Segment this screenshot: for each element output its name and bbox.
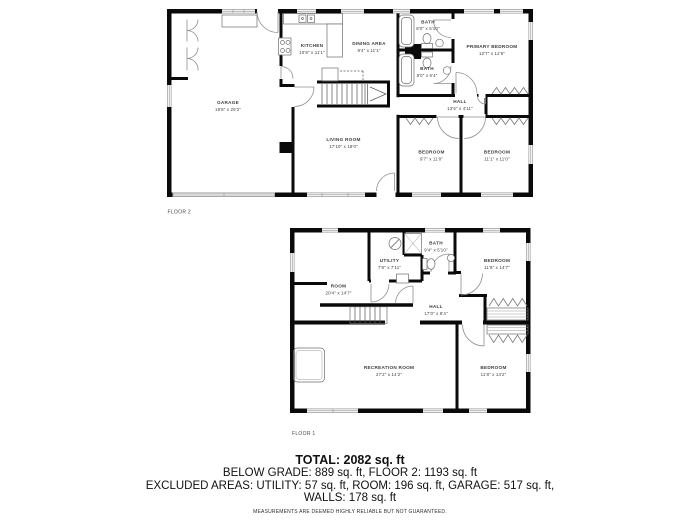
- walls-area: WALLS: 178 sq. ft: [0, 492, 700, 505]
- room-label-dining: DINING AREA 9'4" x 11'1": [352, 41, 386, 53]
- floor1-plan: UTILITY 7'8" x 7'11" BATH 9'4" x 5'10" B…: [290, 228, 531, 437]
- room-name: BATH: [421, 20, 435, 25]
- window: [425, 228, 445, 233]
- window: [167, 85, 172, 107]
- room-name: LIVING ROOM: [326, 137, 360, 142]
- floor2-label: FLOOR 2: [168, 210, 192, 216]
- bath-bedroom-wall: [455, 232, 461, 273]
- window: [469, 409, 487, 414]
- primary-closet-bifold-doors: [492, 88, 528, 95]
- room-dims: 20'4" x 14'7": [325, 291, 351, 296]
- room-name: DINING AREA: [352, 41, 386, 46]
- room-label-utility: UTILITY 7'8" x 7'11": [378, 258, 401, 270]
- toilet-bowl: [423, 34, 431, 44]
- floor1-label: FLOOR 1: [292, 431, 316, 437]
- window: [412, 193, 441, 198]
- room-label-bath: BATH 9'4" x 5'10": [424, 241, 448, 253]
- hall-door-arc: [396, 286, 414, 304]
- room-name: HALL: [453, 99, 467, 104]
- room-dims: 11'8" x 14'7": [484, 265, 510, 270]
- kitchen-counter: [327, 24, 343, 57]
- floorplan-page: GARAGE 19'8" x 29'2" KITCHEN 10'8" x 11'…: [0, 0, 700, 525]
- total-area: TOTAL: 2082 sq. ft: [0, 453, 700, 467]
- room-dims: 7'8" x 7'11": [378, 265, 401, 270]
- room-label-living: LIVING ROOM 17'10" x 18'0": [326, 137, 360, 149]
- room-label-bedroom2: BEDROOM 11'1" x 11'0": [484, 150, 510, 162]
- bedroom2-door-arc: [464, 117, 486, 139]
- room-label-bedroom1: BEDROOM 11'8" x 14'7": [484, 258, 510, 270]
- grade-areas: BELOW GRADE: 889 sq. ft, FLOOR 2: 1193 s…: [0, 467, 700, 480]
- window: [500, 9, 523, 14]
- room-name: RECREATION ROOM: [364, 365, 414, 370]
- primary-bedroom-door-arc: [456, 73, 477, 94]
- room-name: BEDROOM: [418, 150, 444, 155]
- bathroom-sink: [447, 254, 454, 261]
- garage-living-door-arc: [295, 87, 315, 107]
- window: [526, 354, 531, 372]
- room-dims: 12'7" x 12'6": [479, 51, 505, 56]
- chimney-block: [280, 142, 294, 153]
- room-name: ROOM: [331, 284, 347, 289]
- water-heater: [397, 274, 409, 283]
- window: [341, 9, 364, 14]
- stair-landing: [322, 68, 338, 81]
- floorplan-canvas: GARAGE 19'8" x 29'2" KITCHEN 10'8" x 11'…: [0, 0, 700, 525]
- garage-cabinet-doors: [187, 20, 198, 42]
- room-dims: 9'4" x 5'10": [424, 248, 448, 253]
- bedroom1-door-arc: [461, 274, 483, 296]
- stair-overhead-dashed-line: [340, 71, 363, 80]
- floor2-plan: GARAGE 19'8" x 29'2" KITCHEN 10'8" x 11'…: [167, 9, 533, 216]
- room-name: GARAGE: [217, 100, 239, 105]
- bedroom2-closet-bifold-doors: [489, 335, 527, 343]
- room-name: BEDROOM: [480, 365, 506, 370]
- stair-divider: [365, 84, 368, 104]
- garage-door: [173, 193, 276, 198]
- room-name: HALL: [429, 304, 443, 309]
- bedroom1-closet-bifold-doors: [489, 299, 527, 307]
- window: [529, 22, 534, 40]
- room-label-bath1: BATH 8'0" x 5'10": [416, 20, 440, 32]
- room-dims: 27'2" x 14'2": [376, 372, 402, 377]
- room-name: BEDROOM: [484, 150, 510, 155]
- room-dims: 19'8" x 29'2": [215, 107, 241, 112]
- room-dims: 10'8" x 11'1": [299, 50, 325, 55]
- window: [297, 9, 316, 14]
- window: [423, 409, 443, 414]
- room-name: BATH: [420, 66, 434, 71]
- room-label-kitchen: KITCHEN 10'8" x 11'1": [299, 43, 325, 55]
- window: [307, 409, 358, 414]
- room-label-hall1: HALL 17'0" x 8'4": [424, 304, 448, 316]
- toilet-bowl: [427, 259, 435, 270]
- front-door-arc: [377, 173, 395, 191]
- room-dims: 8'0" x 6'4": [417, 73, 438, 78]
- room-name: BEDROOM: [484, 258, 510, 263]
- bathroom-sink: [436, 39, 444, 47]
- sliding-door: [307, 193, 365, 198]
- window: [483, 228, 500, 233]
- utility-door-arc: [371, 284, 389, 302]
- room-label-bedroom1: BEDROOM 9'7" x 11'0": [418, 150, 444, 162]
- window: [464, 9, 494, 14]
- recreation-door-arc: [463, 325, 485, 347]
- window: [322, 228, 338, 233]
- room-label-bath2: BATH 8'0" x 6'4": [417, 66, 438, 78]
- toilet-tank: [422, 44, 433, 49]
- room-dims: 9'4" x 11'1": [357, 48, 380, 53]
- stair-treads: [322, 84, 362, 104]
- room-name: UTILITY: [380, 258, 400, 263]
- room-name: KITCHEN: [301, 43, 324, 48]
- room-label-hall2: HALL 13'5" x 4'11": [447, 99, 473, 111]
- garage-exterior-door-arc: [257, 12, 278, 33]
- floor2-stairs: [322, 68, 386, 104]
- stair-direction-arrow: [370, 87, 386, 101]
- window: [529, 145, 534, 164]
- bedroom1-door-arc: [438, 117, 460, 139]
- room-label-room: ROOM 20'4" x 14'7": [325, 284, 351, 296]
- toilet-tank: [422, 52, 433, 57]
- toilet-tank: [423, 259, 428, 270]
- room-dims: 9'7" x 11'0": [420, 157, 443, 162]
- room-dims: 11'8" x 14'2": [481, 372, 507, 377]
- pool-table: [294, 348, 325, 382]
- garage-cabinet-doors: [187, 48, 198, 71]
- window: [481, 193, 513, 198]
- floor2-room-labels: GARAGE 19'8" x 29'2" KITCHEN 10'8" x 11'…: [215, 20, 517, 162]
- room-label-garage: GARAGE 19'8" x 29'2": [215, 100, 241, 112]
- room-name: BATH: [429, 241, 443, 246]
- bathroom-sink: [443, 67, 451, 75]
- room-name: PRIMARY BEDROOM: [467, 44, 518, 49]
- room-dims: 17'0" x 8'4": [424, 311, 448, 316]
- bedroom1-closet-bifold-doors: [406, 118, 433, 125]
- room-label-primary-bedroom: PRIMARY BEDROOM 12'7" x 12'6": [467, 44, 518, 56]
- room-dims: 13'5" x 4'11": [447, 106, 473, 111]
- bedroom2-closet-bifold-doors: [492, 118, 528, 125]
- room-label-recreation: RECREATION ROOM 27'2" x 14'2": [364, 365, 414, 377]
- disclaimer-text: MEASUREMENTS ARE DEEMED HIGHLY RELIABLE …: [0, 509, 700, 515]
- room-dims: 8'0" x 5'10": [416, 26, 440, 31]
- floor2-openings: [257, 9, 486, 198]
- window: [393, 9, 410, 14]
- shower: [405, 234, 422, 254]
- room-label-bedroom2: BEDROOM 11'8" x 14'2": [480, 365, 506, 377]
- area-summary: TOTAL: 2082 sq. ft BELOW GRADE: 889 sq. …: [0, 453, 700, 515]
- floor1-room-labels: UTILITY 7'8" x 7'11" BATH 9'4" x 5'10" B…: [325, 241, 510, 378]
- room-dims: 11'1" x 11'0": [484, 157, 510, 162]
- window: [222, 9, 255, 14]
- window: [290, 253, 295, 272]
- closet-shelving: [487, 325, 528, 334]
- excluded-areas: EXCLUDED AREAS: UTILITY: 57 sq. ft, ROOM…: [0, 480, 700, 493]
- garage-shelf: [222, 15, 257, 27]
- room-dims: 17'10" x 18'0": [329, 144, 358, 149]
- closet-shelving: [487, 308, 528, 320]
- window: [526, 243, 531, 261]
